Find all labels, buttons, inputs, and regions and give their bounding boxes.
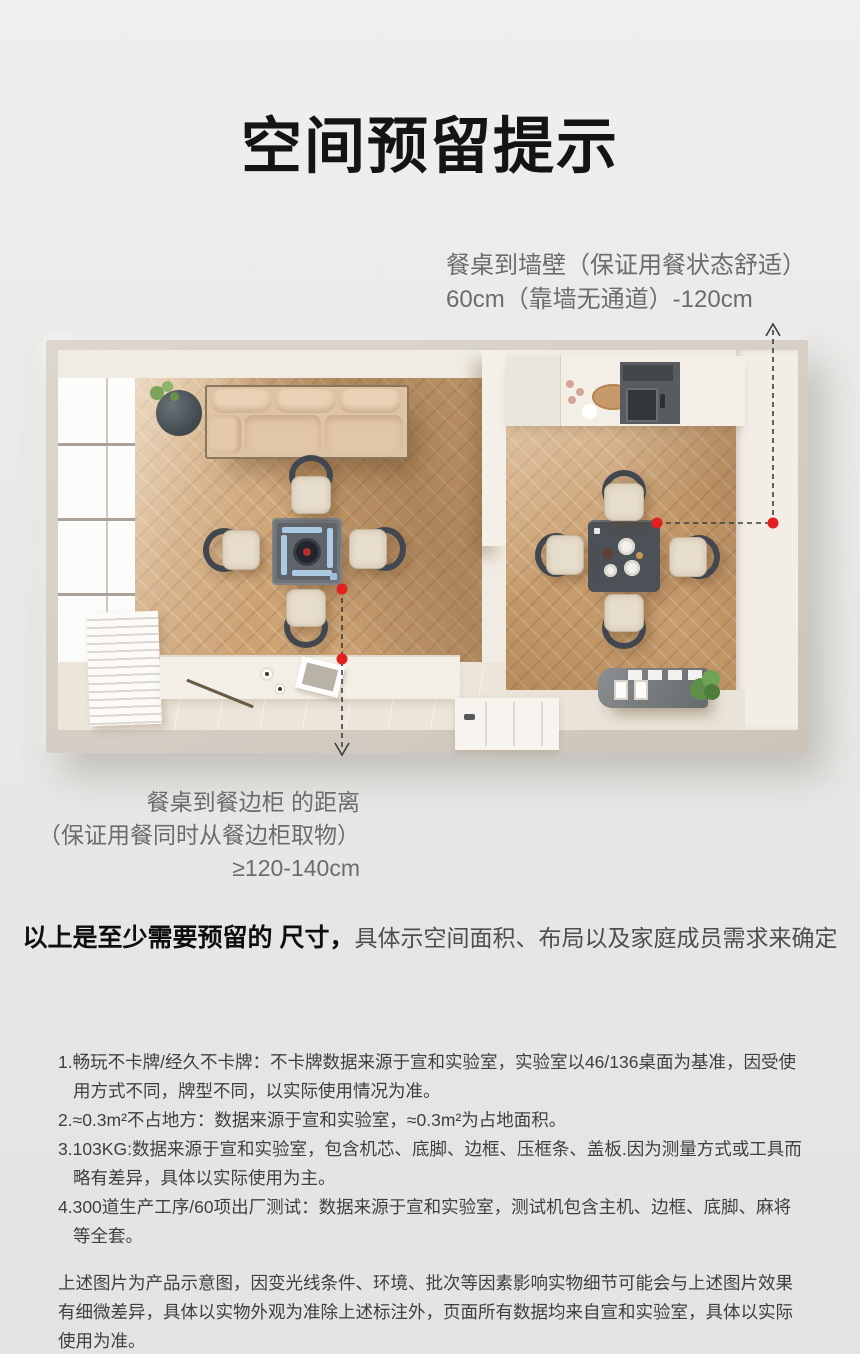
mahjong-center-disc: [293, 538, 321, 566]
chair-seat: [286, 589, 326, 627]
dining-table-chip: [594, 528, 600, 534]
annotation-table-to-wall: 餐桌到墙壁（保证用餐状态舒适） 60cm（靠墙无通道）-120cm: [446, 249, 806, 317]
disclaimer-item: 3.103KG:数据来源于宣和实验室，包含机芯、底脚、边框、压框条、盖板.因为测…: [58, 1135, 806, 1193]
floorplan-render: [46, 340, 808, 753]
radiator: [86, 611, 162, 726]
window-crossbar: [58, 518, 135, 521]
chair: [603, 593, 645, 649]
sofa-back-cushion: [211, 389, 271, 413]
chair: [348, 526, 406, 572]
faucet: [660, 394, 665, 408]
window-crossbar: [58, 593, 135, 596]
tile-rack: [327, 528, 333, 568]
bowl: [582, 404, 597, 419]
size-statement-rest: 具体示空间面积、布局以及家庭成员需求来确定: [354, 925, 837, 951]
window-crossbar: [58, 443, 135, 446]
mat-line: [513, 702, 515, 746]
disclaimer-item: 1.畅玩不卡牌/经久不卡牌：不卡牌数据来源于宣和实验室，实验室以46/136桌面…: [58, 1048, 806, 1106]
chair: [203, 526, 261, 574]
kitchen-counter: [506, 356, 745, 426]
door-handle: [464, 714, 475, 720]
vase-opening: [278, 687, 282, 691]
annotation-table-to-sideboard-line1: 餐桌到餐边柜 的距离: [28, 786, 360, 819]
size-statement-bold: 以上是至少需要预留的 尺寸，: [23, 924, 355, 952]
page-title: 空间预留提示: [0, 96, 860, 185]
plate: [604, 564, 617, 577]
kitchen-item: [566, 380, 574, 388]
plant-leaves: [162, 381, 173, 392]
plant-leaves: [170, 392, 179, 401]
chair: [668, 535, 720, 579]
sideboard-left: [160, 655, 460, 699]
sofa-seat-cushion: [325, 415, 403, 453]
arrow-up-icon: [766, 324, 780, 336]
annotation-table-to-wall-line1: 餐桌到墙壁（保证用餐状态舒适）: [446, 249, 806, 283]
annotation-table-to-sideboard-line2: （保证用餐同时从餐边柜取物）: [28, 819, 360, 852]
chair-seat: [222, 530, 260, 570]
annotation-table-to-sideboard: 餐桌到餐边柜 的距离 （保证用餐同时从餐边柜取物） ≥120-140cm: [28, 786, 360, 885]
sofa-back-cushion: [339, 389, 401, 413]
kitchen-cabinet: [506, 356, 561, 426]
food: [636, 552, 643, 559]
annotation-table-to-sideboard-line3: ≥120-140cm: [28, 852, 360, 885]
disclaimer-paragraph: 上述图片为产品示意图，因变光线条件、环境、批次等因素影响实物细节可能会与上述图片…: [58, 1269, 806, 1354]
photo-frame: [614, 680, 628, 700]
photo-frame: [295, 656, 345, 698]
plant-leaves: [704, 684, 720, 700]
sink: [626, 388, 658, 422]
dining-table: [588, 520, 660, 592]
bowl: [602, 548, 613, 559]
disclaimer-item: 4.300道生产工序/60项出厂测试：数据来源于宣和实验室，测试机包含主机、边框…: [58, 1193, 806, 1251]
mahjong-center-emblem: [303, 548, 311, 556]
sofa: [205, 385, 409, 459]
sofa-seat-cushion: [245, 415, 321, 453]
tile-rack: [292, 570, 332, 576]
sofa-armrest: [209, 415, 241, 453]
chair-seat: [604, 594, 644, 632]
vase-opening: [265, 672, 269, 676]
potted-plant: [156, 390, 202, 436]
cooktop: [623, 365, 673, 381]
size-statement: 以上是至少需要预留的 尺寸，具体示空间面积、布局以及家庭成员需求来确定: [0, 918, 860, 954]
tile-rack: [281, 535, 287, 575]
kitchen-item: [568, 396, 576, 404]
photo-image: [302, 662, 338, 691]
potted-plant: [690, 670, 726, 706]
chair-seat: [349, 529, 387, 569]
sideboard-right: [598, 668, 708, 708]
sofa-back-cushion: [275, 389, 335, 413]
disclaimer-section: 1.畅玩不卡牌/经久不卡牌：不卡牌数据来源于宣和实验室，实验室以46/136桌面…: [58, 1048, 806, 1354]
chair-seat: [546, 535, 584, 575]
mahjong-table: [272, 518, 342, 585]
plate: [618, 538, 635, 555]
divider-wall: [482, 350, 506, 546]
tile-rack: [282, 527, 322, 533]
kitchen-item: [576, 388, 584, 396]
chair: [603, 470, 645, 522]
mat-line: [541, 702, 543, 746]
disclaimer-item: 2.≈0.3m²不占地方：数据来源于宣和实验室，≈0.3m²为占地面积。: [58, 1106, 806, 1135]
annotation-table-to-wall-line2: 60cm（靠墙无通道）-120cm: [446, 283, 806, 317]
space-reservation-infographic: 空间预留提示 餐桌到墙壁（保证用餐状态舒适） 60cm（靠墙无通道）-120cm: [0, 0, 860, 1354]
mahjong-corner-chip: [330, 573, 337, 580]
photo-frame: [634, 680, 648, 700]
right-wall: [736, 350, 798, 730]
chair: [283, 588, 329, 648]
chair-seat: [669, 537, 707, 577]
mat-line: [485, 702, 487, 746]
chair: [535, 533, 585, 577]
entry-mat: [455, 698, 559, 750]
chair-seat: [604, 483, 644, 521]
chair-seat: [291, 476, 331, 514]
plate: [624, 560, 640, 576]
chair: [288, 455, 334, 515]
sink-cooktop-unit: [620, 362, 680, 424]
